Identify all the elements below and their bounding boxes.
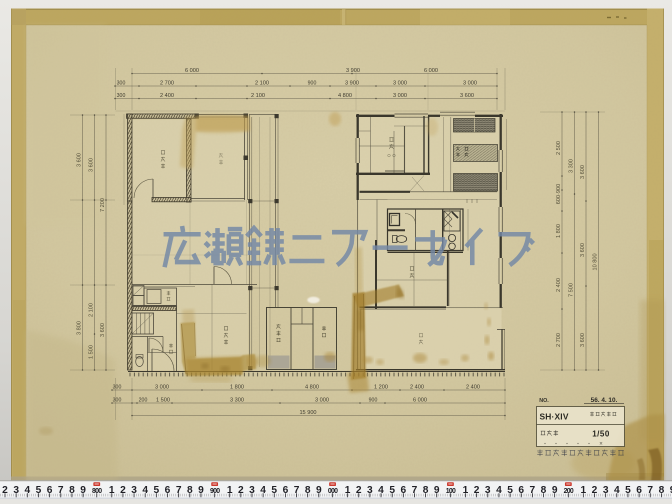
svg-text:3 000: 3 000 — [315, 398, 329, 404]
svg-text:6 000: 6 000 — [413, 398, 427, 404]
svg-text:10 800: 10 800 — [593, 253, 599, 270]
svg-text:2 700: 2 700 — [556, 333, 562, 347]
svg-text:3 000: 3 000 — [393, 93, 407, 99]
svg-text:600·900: 600·900 — [556, 184, 562, 205]
svg-text:3 600: 3 600 — [580, 243, 586, 257]
svg-text:3 300: 3 300 — [230, 398, 244, 404]
svg-text:3 900: 3 900 — [346, 68, 360, 74]
svg-text:7 200: 7 200 — [100, 198, 106, 212]
svg-text:3 600: 3 600 — [460, 93, 474, 99]
svg-text:300: 300 — [113, 398, 122, 404]
svg-text:3 600: 3 600 — [89, 158, 95, 172]
svg-text:2 400: 2 400 — [466, 385, 480, 391]
svg-text:900: 900 — [369, 398, 378, 404]
svg-text:2 700: 2 700 — [160, 81, 174, 87]
svg-text:56. 4. 10.: 56. 4. 10. — [591, 397, 618, 404]
svg-text:3 000: 3 000 — [393, 81, 407, 87]
svg-text:3 000: 3 000 — [155, 385, 169, 391]
svg-text:300: 300 — [117, 81, 126, 87]
svg-text:2 400: 2 400 — [160, 93, 174, 99]
svg-text:6 000: 6 000 — [424, 68, 438, 74]
svg-text:2 500: 2 500 — [556, 141, 562, 155]
svg-text:3 900: 3 900 — [345, 81, 359, 87]
svg-text:1 800: 1 800 — [230, 385, 244, 391]
svg-text:4 800: 4 800 — [338, 93, 352, 99]
svg-text:3 600: 3 600 — [580, 333, 586, 347]
svg-text:000: 000 — [328, 488, 338, 495]
svg-text:2 400: 2 400 — [556, 278, 562, 292]
svg-text:3 600: 3 600 — [100, 323, 106, 337]
svg-text:3 000: 3 000 — [463, 81, 477, 87]
svg-text:3 600: 3 600 — [580, 165, 586, 179]
svg-text:15 900: 15 900 — [299, 410, 316, 416]
svg-text:200: 200 — [139, 398, 148, 404]
svg-text:7 500: 7 500 — [569, 283, 575, 297]
svg-text:2 100: 2 100 — [255, 81, 269, 87]
svg-text:1 500: 1 500 — [156, 398, 170, 404]
svg-text:2 100: 2 100 — [89, 303, 95, 317]
svg-text:6 000: 6 000 — [185, 68, 199, 74]
svg-text:1 800: 1 800 — [556, 224, 562, 238]
svg-text:SH·XIV: SH·XIV — [540, 412, 569, 422]
svg-text:1 500: 1 500 — [89, 345, 95, 359]
svg-text:300: 300 — [113, 385, 122, 391]
svg-text:×: × — [599, 442, 603, 448]
svg-text:3 800: 3 800 — [77, 321, 83, 335]
svg-text:300: 300 — [117, 93, 126, 99]
svg-text:2 400: 2 400 — [410, 385, 424, 391]
svg-text:2 100: 2 100 — [251, 93, 265, 99]
svg-text:4 800: 4 800 — [305, 385, 319, 391]
svg-text:3 600: 3 600 — [77, 153, 83, 167]
svg-text:1/50: 1/50 — [592, 430, 610, 439]
svg-text:1 200: 1 200 — [374, 385, 388, 391]
svg-text:900: 900 — [308, 81, 317, 87]
svg-text:3 300: 3 300 — [569, 159, 575, 173]
svg-text:NO.: NO. — [539, 398, 549, 404]
